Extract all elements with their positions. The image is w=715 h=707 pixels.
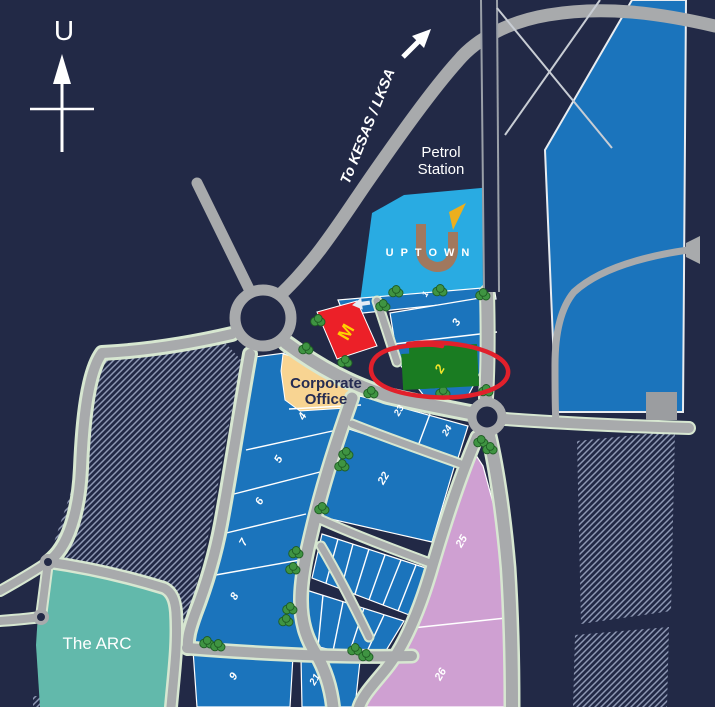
roundabout-small — [472, 402, 502, 432]
corporate-office-label-line1: Corporate — [290, 375, 362, 392]
junction-circle — [35, 611, 47, 623]
site-plan-map: Petrol Station To KESAS / LKSA UPTOWN Co… — [0, 0, 715, 707]
corporate-office-label-line2: Office — [305, 391, 348, 408]
utility-structure — [646, 392, 677, 420]
hatch-zone-east-upper — [577, 431, 675, 624]
junction-circle — [42, 556, 54, 568]
uptown-label: UPTOWN — [386, 247, 477, 259]
roundabout-main — [235, 290, 291, 346]
road-vertical-mid — [486, 292, 488, 398]
lot-2-highlight-rect — [409, 344, 479, 390]
site-map-svg: Petrol Station To KESAS / LKSA UPTOWN Co… — [0, 0, 715, 707]
petrol-station-label-line2: Station — [418, 161, 465, 178]
north-label: U — [54, 15, 74, 46]
the-arc-label: The ARC — [63, 634, 132, 653]
hatch-zone-east-lower — [573, 627, 669, 707]
petrol-station-label-line1: Petrol — [421, 144, 460, 161]
